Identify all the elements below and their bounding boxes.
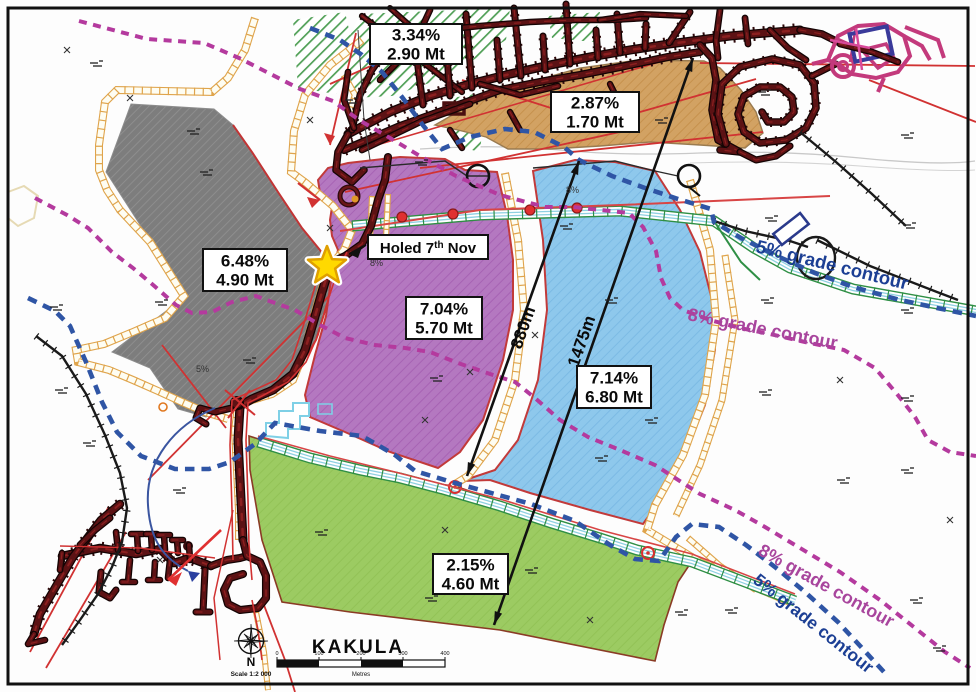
svg-text:200: 200 <box>356 651 365 657</box>
svg-text:6.80 Mt: 6.80 Mt <box>585 388 643 407</box>
svg-text:Metres: Metres <box>352 672 370 678</box>
svg-text:2.90 Mt: 2.90 Mt <box>387 45 445 64</box>
svg-text:4.60 Mt: 4.60 Mt <box>442 575 500 594</box>
svg-text:100: 100 <box>314 651 323 657</box>
svg-text:6.48%: 6.48% <box>221 252 269 271</box>
svg-text:Holed 7th Nov: Holed 7th Nov <box>380 240 477 257</box>
svg-text:1.70 Mt: 1.70 Mt <box>566 113 624 132</box>
svg-text:8%: 8% <box>566 185 579 195</box>
svg-text:5%: 5% <box>196 364 209 374</box>
svg-text:4.90 Mt: 4.90 Mt <box>216 271 274 290</box>
svg-text:7.14%: 7.14% <box>590 369 638 388</box>
svg-text:0: 0 <box>275 651 278 657</box>
svg-text:400: 400 <box>440 651 449 657</box>
svg-text:2.15%: 2.15% <box>446 556 494 575</box>
svg-text:7.04%: 7.04% <box>420 300 468 319</box>
svg-text:2.87%: 2.87% <box>571 94 619 113</box>
svg-text:3.34%: 3.34% <box>392 26 440 45</box>
svg-text:5.70 Mt: 5.70 Mt <box>415 319 473 338</box>
svg-text:300: 300 <box>398 651 407 657</box>
svg-text:N: N <box>247 655 256 669</box>
svg-text:Scale 1:2 000: Scale 1:2 000 <box>231 671 272 678</box>
